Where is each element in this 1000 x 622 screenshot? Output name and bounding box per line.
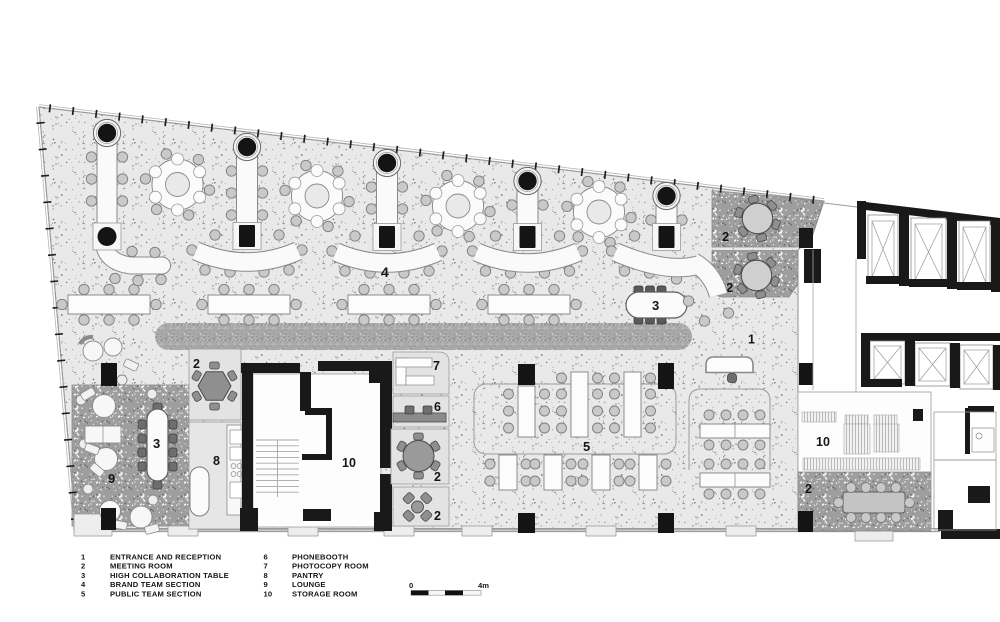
svg-text:10: 10	[264, 589, 273, 598]
svg-text:1: 1	[81, 553, 86, 562]
svg-text:PHONEBOOTH: PHONEBOOTH	[292, 553, 348, 562]
svg-text:3: 3	[153, 436, 160, 451]
svg-text:9: 9	[264, 580, 268, 589]
svg-text:PHOTOCOPY ROOM: PHOTOCOPY ROOM	[292, 562, 369, 571]
svg-text:2: 2	[81, 562, 85, 571]
svg-text:6: 6	[434, 400, 441, 414]
svg-text:STORAGE ROOM: STORAGE ROOM	[292, 589, 358, 598]
svg-text:5: 5	[583, 439, 590, 454]
svg-text:7: 7	[433, 359, 440, 373]
svg-text:10: 10	[342, 456, 356, 470]
svg-text:2: 2	[434, 470, 441, 484]
svg-text:4m: 4m	[478, 581, 489, 590]
svg-text:ENTRANCE AND RECEPTION: ENTRANCE AND RECEPTION	[110, 553, 221, 562]
svg-text:9: 9	[108, 471, 115, 486]
svg-text:2: 2	[726, 280, 733, 295]
svg-text:8: 8	[213, 454, 220, 468]
svg-text:PANTRY: PANTRY	[292, 571, 324, 580]
svg-text:MEETING ROOM: MEETING ROOM	[110, 562, 173, 571]
svg-text:4: 4	[381, 264, 389, 280]
svg-text:3: 3	[81, 571, 85, 580]
svg-text:LOUNGE: LOUNGE	[292, 580, 326, 589]
svg-text:0: 0	[409, 581, 413, 590]
svg-text:5: 5	[81, 589, 86, 598]
svg-text:3: 3	[652, 298, 659, 313]
svg-text:2: 2	[434, 509, 441, 523]
svg-text:PUBLIC TEAM SECTION: PUBLIC TEAM SECTION	[110, 589, 202, 598]
svg-text:10: 10	[816, 435, 830, 449]
svg-text:2: 2	[722, 229, 729, 244]
svg-text:6: 6	[264, 553, 268, 562]
svg-text:2: 2	[193, 357, 200, 371]
svg-text:7: 7	[264, 562, 268, 571]
svg-text:1: 1	[748, 333, 755, 347]
svg-text:BRAND TEAM SECTION: BRAND TEAM SECTION	[110, 580, 201, 589]
svg-text:4: 4	[81, 580, 86, 589]
svg-text:HIGH COLLABORATION TABLE: HIGH COLLABORATION TABLE	[110, 571, 229, 580]
svg-text:2: 2	[805, 482, 812, 496]
svg-text:8: 8	[264, 571, 268, 580]
